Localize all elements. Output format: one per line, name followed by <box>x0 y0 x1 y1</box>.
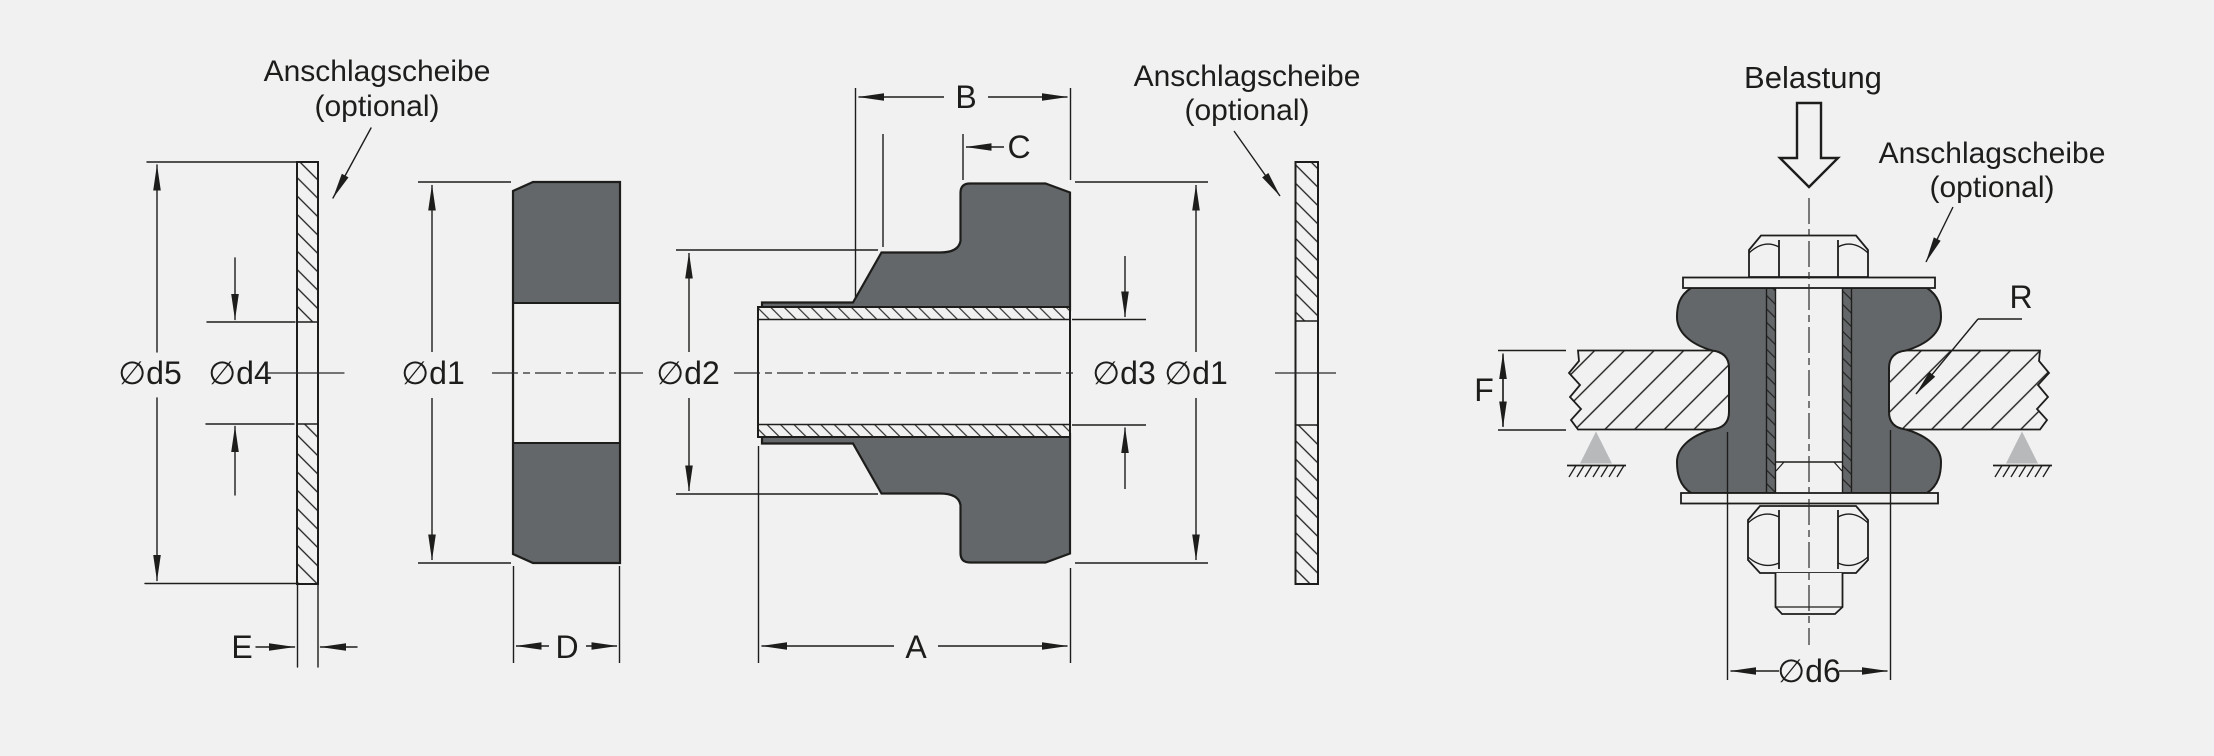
vibration-damper-drawing: Anschlagscheibe (optional) ∅d5 ∅d4 E ∅d1… <box>0 0 2214 756</box>
right-stop-washer-view: Anschlagscheibe (optional) <box>1134 60 1361 584</box>
annotation-stop-washer-left-line1: Anschlagscheibe <box>264 55 491 88</box>
spacer-ring-view: ∅d1 D <box>401 182 643 665</box>
hex-nut-bottom <box>1748 506 1868 573</box>
dim-label-a: A <box>905 629 927 665</box>
annotation-stop-washer-left-line2: (optional) <box>314 90 439 123</box>
dim-label-d5: ∅d5 <box>118 355 181 391</box>
sleeve-tube <box>758 307 1070 437</box>
annotation-stop-washer-middle-line2: (optional) <box>1184 94 1309 127</box>
installed-assembly-view: Belastung <box>1474 60 2105 689</box>
sleeve-wall-left <box>1767 288 1776 493</box>
dim-label-b: B <box>955 79 976 115</box>
dim-e-lines <box>256 584 357 667</box>
annotation-stop-washer-installed-line2: (optional) <box>1929 171 2054 204</box>
technical-drawing-page: Anschlagscheibe (optional) ∅d5 ∅d4 E ∅d1… <box>0 0 2214 756</box>
support-symbol-right <box>1993 432 2052 478</box>
rubber-flange-bottom <box>762 434 1070 563</box>
dim-label-d3: ∅d3 <box>1092 355 1155 391</box>
dim-label-d6: ∅d6 <box>1777 653 1840 689</box>
dim-label-d1-ring: ∅d1 <box>401 355 464 391</box>
dim-f-lines <box>1498 351 1566 431</box>
load-arrow-icon <box>1780 103 1838 187</box>
leader-installed-stop-washer <box>1926 207 1953 262</box>
dim-label-r: R <box>2009 279 2032 315</box>
annotation-load: Belastung <box>1744 60 1882 95</box>
leader-middle-stop-washer <box>1234 131 1280 196</box>
dim-label-d4: ∅d4 <box>208 355 271 391</box>
bushing-section-view: B C ∅d2 ∅d3 ∅d1 A <box>656 79 1227 665</box>
dim-label-e: E <box>231 629 252 665</box>
support-symbol-left <box>1567 432 1626 478</box>
dim-label-c: C <box>1007 129 1030 165</box>
annotation-stop-washer-middle-line1: Anschlagscheibe <box>1134 60 1361 93</box>
dim-label-d2: ∅d2 <box>656 355 719 391</box>
annotation-stop-washer-installed-line1: Anschlagscheibe <box>1879 137 2106 170</box>
leader-left-stop-washer <box>333 128 371 198</box>
rubber-flange-top <box>762 184 1070 311</box>
sleeve-wall-right <box>1843 288 1852 493</box>
dim-label-f: F <box>1474 372 1494 408</box>
panel-left <box>1569 351 1731 430</box>
dim-label-d1-bushing: ∅d1 <box>1164 355 1227 391</box>
dim-label-d: D <box>555 629 578 665</box>
washer-hatch-lower <box>297 424 318 584</box>
panel-right <box>1887 351 2049 430</box>
washer-hatch-upper <box>297 162 318 322</box>
